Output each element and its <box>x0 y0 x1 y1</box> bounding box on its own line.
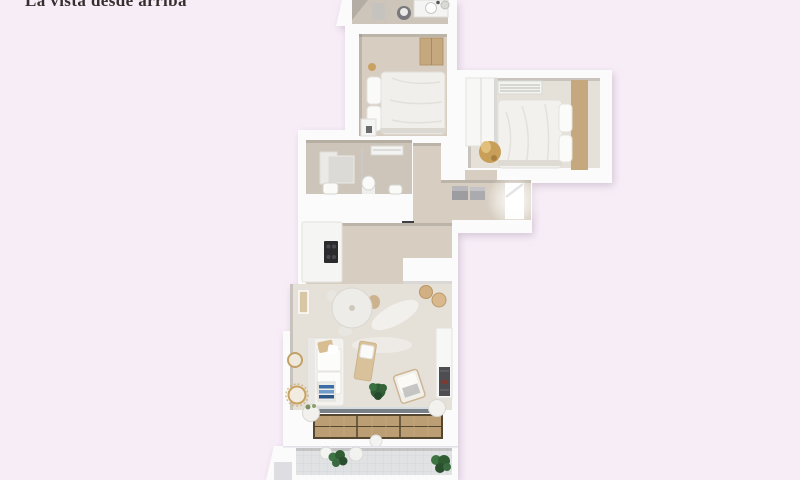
bedside-lamp <box>368 63 376 71</box>
room-living-dining <box>286 284 452 410</box>
throw-pillow <box>327 344 338 355</box>
pillow <box>559 104 572 132</box>
pot <box>370 435 382 447</box>
tv-console <box>436 328 452 398</box>
wardrobe <box>420 38 443 65</box>
deck-floor <box>314 415 442 438</box>
toilet <box>397 6 411 20</box>
floorplan-render <box>0 0 800 480</box>
entry-door-open <box>505 183 524 219</box>
wall-art <box>299 291 308 313</box>
step-shadow <box>274 462 292 480</box>
side-table-blankets <box>318 382 335 401</box>
bath-mat <box>372 3 385 20</box>
sink <box>323 183 338 194</box>
pillow <box>559 135 572 162</box>
cooktop <box>324 241 338 263</box>
wall-stub <box>403 258 452 284</box>
room-bedroom-2 <box>466 78 600 170</box>
room-bedroom-1 <box>359 34 447 136</box>
washer-drum <box>441 1 449 9</box>
room-kitchen <box>302 222 452 284</box>
bed <box>367 72 445 134</box>
wardrobe <box>466 78 497 146</box>
air-conditioner <box>498 81 542 94</box>
floorplan-page: La vista desde arriba <box>0 0 800 480</box>
pillow <box>367 77 381 104</box>
clothes-pile <box>479 141 501 163</box>
room-bathroom-top <box>352 0 449 24</box>
room-bathroom-main <box>306 140 412 194</box>
kitchen-counter <box>302 222 342 282</box>
vanity-sink <box>414 0 449 17</box>
towel-rack <box>371 146 403 155</box>
toilet <box>362 176 375 194</box>
nightstand <box>361 119 376 136</box>
wall-edge <box>283 446 458 448</box>
glass-balustrade <box>310 407 444 413</box>
faucet <box>436 1 440 5</box>
shower-enclosure <box>328 156 354 183</box>
bidet <box>389 185 402 194</box>
headboard-panel <box>571 80 588 170</box>
bed <box>498 100 572 168</box>
